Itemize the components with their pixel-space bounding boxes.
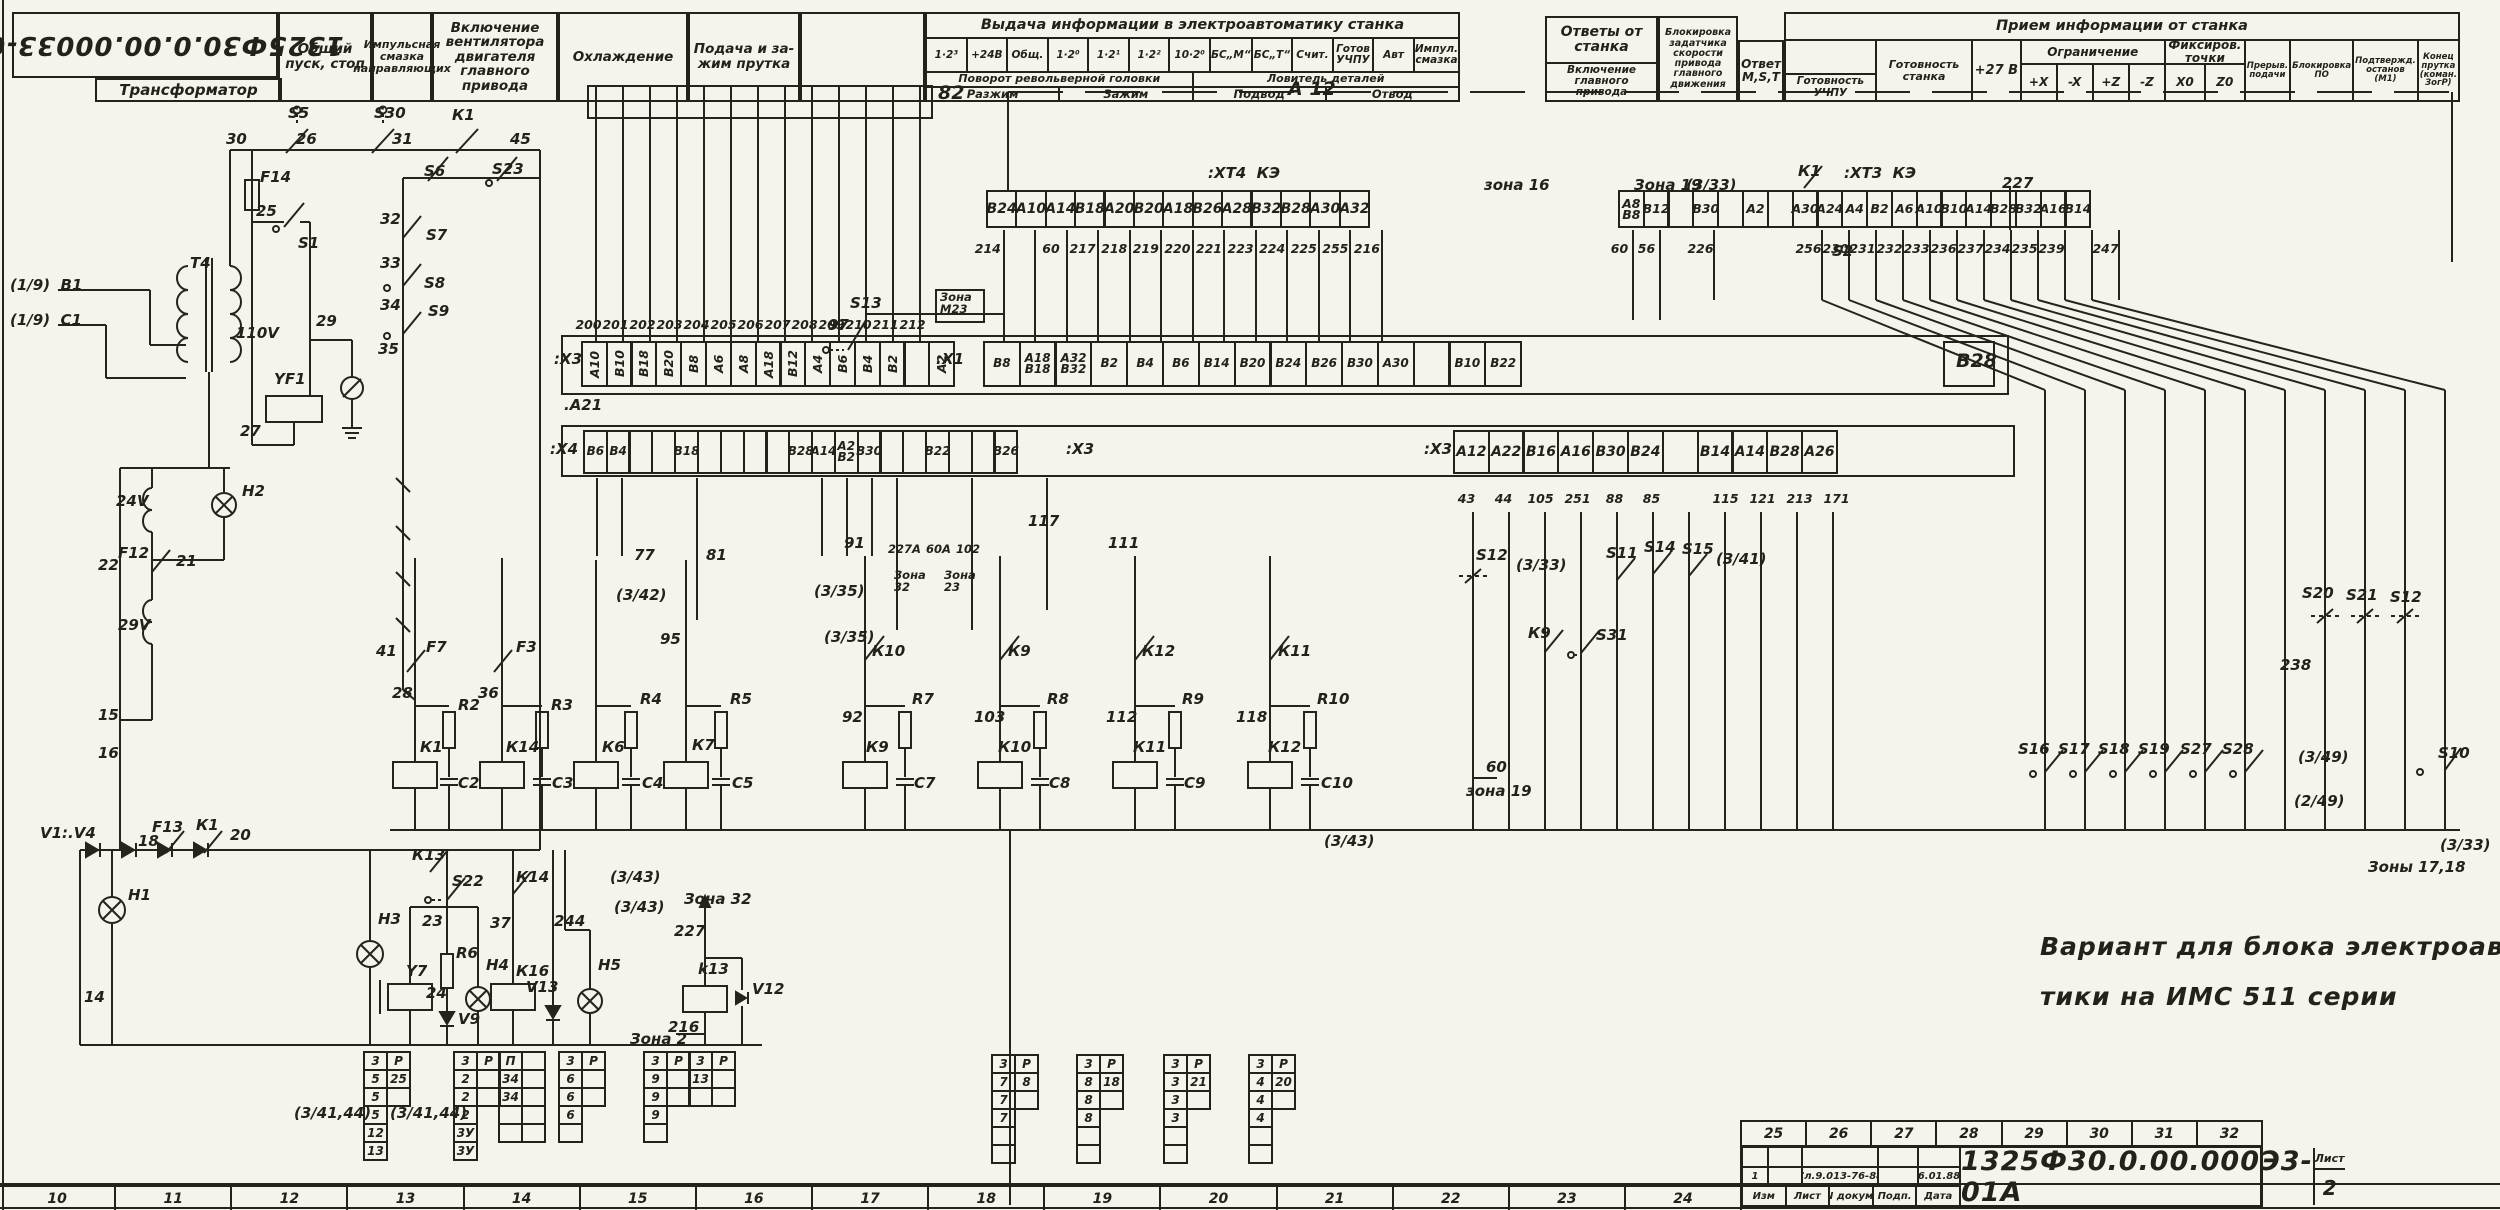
- wire-number: 44: [1485, 490, 1522, 506]
- schematic-label: А 12: [1288, 80, 1336, 99]
- contact-table-cell: [1163, 1126, 1188, 1146]
- fix-box: Фиксиров. точки X0Z0: [2166, 41, 2246, 100]
- zone-number: 32: [2198, 1122, 2261, 1145]
- ready-cnc-box: Готовность УЧПУ: [1786, 41, 1877, 100]
- contact-table-cell: 9: [643, 1087, 668, 1107]
- schematic-label: 112: [1106, 710, 1137, 725]
- wire-number: 88: [1596, 490, 1633, 506]
- schematic-label: Н1: [128, 888, 151, 903]
- terminal-cell: А4: [1841, 190, 1868, 228]
- schematic-label: Y7: [406, 964, 427, 979]
- contact-table-cell: 3: [991, 1054, 1016, 1074]
- schematic-label: R4: [640, 692, 662, 707]
- schematic-label: К12: [1268, 740, 1301, 755]
- contact-table-cell: Р: [581, 1051, 606, 1071]
- contact-table-cell: [1014, 1090, 1039, 1110]
- schematic-label: (3/41,44): [294, 1106, 371, 1121]
- schematic-label: Зона 2: [630, 1032, 687, 1047]
- terminal-cell: В30: [1692, 190, 1719, 228]
- connector-pin: В30: [857, 430, 882, 474]
- schematic-label: 92: [842, 710, 863, 725]
- schematic-label: S1: [298, 236, 319, 251]
- zone-number: 12: [232, 1187, 348, 1210]
- schematic-label: S15: [1682, 542, 1714, 557]
- schematic-label: 60А: [926, 544, 951, 556]
- contact-table: 3Р13: [690, 1053, 736, 1107]
- revision-footer: ИзмЛистN докум.Подп.Дата: [1743, 1187, 1959, 1205]
- fix-cell: X0: [2166, 65, 2206, 100]
- connector-pin: В20: [655, 341, 682, 387]
- schematic-label: 97: [828, 318, 849, 333]
- schematic-label: :Х1: [936, 352, 964, 367]
- x3-right-wire-numbers: 43441052518885115121213171: [1448, 490, 1855, 506]
- connector-pin: [948, 430, 973, 474]
- sheet-number: 2: [2315, 1170, 2345, 1205]
- schematic-label: S18: [2098, 742, 2130, 757]
- footer-col: N докум.: [1830, 1187, 1874, 1205]
- schematic-label: (3/43): [614, 900, 665, 915]
- zone-number: 21: [1278, 1187, 1394, 1210]
- contact-table-cell: [1163, 1144, 1188, 1164]
- connector-pin: В24: [1269, 341, 1307, 387]
- contact-table-cell: 3: [1076, 1054, 1101, 1074]
- contact-table: 3Р32133: [1165, 1056, 1211, 1164]
- schematic-label: 27: [240, 424, 261, 439]
- wire-number: 221: [1193, 240, 1225, 256]
- contact-table-cell: 3У: [453, 1123, 478, 1143]
- schematic-label: Зона 32: [684, 892, 752, 907]
- schematic-label: 30: [226, 132, 247, 147]
- schematic-label: К1: [452, 108, 475, 123]
- schematic-label: 36: [478, 686, 499, 701]
- wire-number: 234: [1984, 240, 2011, 256]
- terminal-cell: В20: [1133, 190, 1165, 228]
- xt3-wire-numbers: 6056226256230231232233236237234235239247: [1606, 240, 2119, 256]
- terminal-cell: А2: [1742, 190, 1769, 228]
- connector-pin: В2: [1090, 341, 1128, 387]
- contact-table-cell: 18: [1099, 1072, 1124, 1092]
- schematic-label: К10: [998, 740, 1031, 755]
- wire-number: 203: [656, 316, 683, 332]
- ready-machine-box: Готовность станка: [1877, 41, 1973, 100]
- title-block: 1 Сл.9.013-76-88 6.01.88 ИзмЛистN докум.…: [1740, 1145, 2263, 1208]
- schematic-label: 77: [634, 548, 655, 563]
- schematic-label: К1: [196, 818, 219, 833]
- zone-number: 15: [581, 1187, 697, 1210]
- xt4-wire-numbers: 21460217218219220221223224225255216: [972, 240, 1383, 256]
- connector-pin: А6: [705, 341, 732, 387]
- output-signal-cell: 10·2⁰: [1170, 39, 1211, 70]
- schematic-label: 34: [380, 298, 401, 313]
- connector-pin: А4: [804, 341, 831, 387]
- schematic-label: S7: [426, 228, 447, 243]
- terminal-cell: А30: [1309, 190, 1341, 228]
- ready-cnc-label: Готовность УЧПУ: [1786, 75, 1875, 100]
- schematic-label: (1/9) С1: [10, 313, 82, 328]
- wire-number: [2065, 240, 2092, 256]
- schematic-label: К9: [1008, 644, 1031, 659]
- schematic-label: 15: [98, 708, 119, 723]
- rev-doc: Сл.9.013-76-88: [1803, 1168, 1879, 1186]
- connector-pin: В16: [1522, 430, 1559, 474]
- schematic-label: 21: [176, 554, 197, 569]
- zone-number: 10: [0, 1187, 116, 1210]
- schematic-label: 16: [98, 746, 119, 761]
- wire-number: 217: [1067, 240, 1099, 256]
- schematic-label: S19: [2138, 742, 2170, 757]
- connector-pin: В6: [829, 341, 856, 387]
- connector-pin: А26: [1801, 430, 1838, 474]
- schematic-label: Н3: [378, 912, 401, 927]
- connector-pin: [765, 430, 790, 474]
- connector-pin: А10: [581, 341, 608, 387]
- zone-scale-title: 2526272829303132: [1740, 1120, 2263, 1145]
- schematic-label: S21: [2346, 588, 2378, 603]
- schematic-label: F3: [516, 640, 537, 655]
- schematic-label: К16: [516, 964, 549, 979]
- output-signal-cell: БС„М“: [1211, 39, 1253, 70]
- connector-pin: В8: [983, 341, 1021, 387]
- header-col-lubrication: Импульс­ная смазка направляющих: [372, 12, 432, 102]
- contact-table-cell: [1076, 1144, 1101, 1164]
- terminal-cell: В18: [1074, 190, 1106, 228]
- contact-table-cell: [1076, 1126, 1101, 1146]
- connector-x4: В6В4В18В28А14А2 В2В30В22В26: [585, 430, 1018, 474]
- contact-table: 3Р2223У3У: [455, 1053, 501, 1161]
- contact-table-cell: 7: [991, 1090, 1016, 1110]
- schematic-label: К12: [1142, 644, 1175, 659]
- terminal-cell: В28: [1280, 190, 1312, 228]
- turret-cell: Зажим: [1060, 88, 1191, 100]
- input-tail-cell: Прерыв. подачи: [2246, 41, 2291, 100]
- rev-num: 1: [1743, 1168, 1769, 1186]
- schematic-label: S23: [492, 162, 524, 177]
- terminal-cell: В10: [1940, 190, 1967, 228]
- contact-table-cell: [1099, 1090, 1124, 1110]
- connector-pin: [1413, 341, 1451, 387]
- schematic-label: С4: [642, 776, 663, 791]
- connector-pin: А18: [755, 341, 782, 387]
- wire-number: 201: [602, 316, 629, 332]
- schematic-label: К11: [1133, 740, 1166, 755]
- schematic-label: V1:.V4: [40, 826, 96, 841]
- connector-pin: В10: [1448, 341, 1486, 387]
- schematic-label: Зона 32: [894, 570, 926, 593]
- wire-number: 200: [575, 316, 602, 332]
- schematic-label: 22: [98, 558, 119, 573]
- output-signal-cell: Счит.: [1293, 39, 1334, 70]
- schematic-label: 14: [84, 990, 105, 1005]
- schematic-label: зона 16: [1484, 178, 1550, 193]
- connector-pin: [1662, 430, 1699, 474]
- zone-number: 14: [465, 1187, 581, 1210]
- connector-pin: В14: [1697, 430, 1734, 474]
- schematic-label: 60: [1486, 760, 1507, 775]
- schematic-label: S28: [2222, 742, 2254, 757]
- wire-number: 207: [764, 316, 791, 332]
- wire-number: 224: [1256, 240, 1288, 256]
- output-section: Выдача информации в электроавтоматику ст…: [925, 12, 1460, 102]
- zone-number: 30: [2068, 1122, 2133, 1145]
- zone-number: 25: [1742, 1122, 1807, 1145]
- contact-table-cell: 3: [1163, 1054, 1188, 1074]
- schematic-label: YF1: [274, 372, 306, 387]
- answers-sub: Включение главного привода: [1547, 64, 1656, 100]
- turret-title: Поворот револьверной головки: [927, 73, 1192, 88]
- limit-cell: +X: [2022, 65, 2058, 100]
- wire-number: 251: [1559, 490, 1596, 506]
- schematic-label: :ХТ4 КЭ: [1208, 166, 1280, 181]
- contact-table-cell: 4: [1248, 1090, 1273, 1110]
- schematic-label: С8: [1049, 776, 1070, 791]
- schematic-label: 102: [956, 544, 980, 556]
- zone-number: 26: [1807, 1122, 1872, 1145]
- terminal-cell: В12: [1643, 190, 1670, 228]
- wire-number: 236: [1930, 240, 1957, 256]
- contact-table-cell: 34: [498, 1069, 523, 1089]
- schematic-label: 23: [422, 914, 443, 929]
- schematic-label: 91: [844, 536, 865, 551]
- schematic-label: С3: [552, 776, 573, 791]
- schematic-label: (3/33): [1686, 178, 1737, 193]
- schematic-label: 118: [1236, 710, 1267, 725]
- contact-table-cell: 13: [688, 1069, 713, 1089]
- terminal-cell: А14: [1045, 190, 1077, 228]
- schematic-label: :Х4: [550, 442, 578, 457]
- schematic-label: Зона 23: [944, 570, 976, 593]
- answer-mst-box: Ответ M,S,T: [1738, 40, 1784, 102]
- terminal-cell: [1717, 190, 1744, 228]
- schematic-label: R5: [730, 692, 752, 707]
- wire-number: [953, 316, 980, 332]
- contact-table-cell: 6: [558, 1105, 583, 1125]
- schematic-label: R10: [1317, 692, 1349, 707]
- contact-table-cell: 12: [363, 1123, 388, 1143]
- contact-table-cell: [1248, 1144, 1273, 1164]
- schematic-label: F7: [426, 640, 447, 655]
- terminal-cell: А20: [1103, 190, 1135, 228]
- wire-number: 218: [1098, 240, 1130, 256]
- output-signal-cell: БС„Т“: [1253, 39, 1294, 70]
- answers-title: Ответы от станка: [1547, 18, 1656, 64]
- connector-pin: [879, 430, 904, 474]
- schematic-label: зона 19: [1466, 784, 1532, 799]
- schematic-label: (3/33): [2440, 838, 2491, 853]
- schematic-label: 45: [510, 132, 531, 147]
- schematic-label: (3/43): [1324, 834, 1375, 849]
- sheet-box: Лист 2: [2313, 1148, 2345, 1205]
- contact-table-cell: 4: [1248, 1072, 1273, 1092]
- contact-table: 3Р525551213: [365, 1053, 411, 1161]
- contact-table-cell: [1186, 1090, 1211, 1110]
- schematic-label: R9: [1182, 692, 1204, 707]
- connector-pin: В4: [1126, 341, 1164, 387]
- schematic-label: 31: [392, 132, 413, 147]
- connector-pin: В10: [606, 341, 633, 387]
- answers-box: Ответы от станка Включение главного прив…: [1545, 16, 1658, 102]
- wire-number: 226: [1687, 240, 1714, 256]
- connector-pin: А12: [1453, 430, 1490, 474]
- schematic-label: S11: [1606, 546, 1638, 561]
- wire-number: 247: [2092, 240, 2119, 256]
- schematic-label: 111: [1108, 536, 1139, 551]
- contact-table-cell: [711, 1087, 736, 1107]
- contact-table-cell: 3: [363, 1051, 388, 1071]
- wire-number: 216: [1351, 240, 1383, 256]
- schematic-label: 32: [380, 212, 401, 227]
- schematic-label: 33: [380, 256, 401, 271]
- zone-number: 29: [2003, 1122, 2068, 1145]
- plus27-box: +27 В: [1973, 41, 2021, 100]
- contact-table-cell: [521, 1123, 546, 1143]
- connector-pin: А16: [1557, 430, 1594, 474]
- contact-table-cell: [991, 1126, 1016, 1146]
- connector-pin: А2 В2: [834, 430, 859, 474]
- wire-number: 213: [1781, 490, 1818, 506]
- x3-left-wire-numbers: 200201202203204205206207208209210211212: [575, 316, 980, 332]
- schematic-label: К14: [506, 740, 539, 755]
- schematic-label: 18: [138, 834, 159, 849]
- terminal-cell: А14: [1965, 190, 1992, 228]
- connector-pin: А14: [1731, 430, 1768, 474]
- schematic-label: 227: [2002, 176, 2033, 191]
- contact-table-cell: 6: [558, 1069, 583, 1089]
- schematic-label: S10: [2438, 746, 2470, 761]
- fix-cell: Z0: [2206, 65, 2244, 100]
- wire-number: 233: [1903, 240, 1930, 256]
- contact-table-cell: Р: [386, 1051, 411, 1071]
- header-col-bar-feed: Подача и за­жим прутка: [688, 12, 800, 102]
- connector-pin: [971, 430, 996, 474]
- contact-table: 3Р81888: [1078, 1056, 1124, 1164]
- terminal-cell: А6: [1891, 190, 1918, 228]
- input-tail-cells: Прерыв. подачиБлокировка ПОПодтвержд. ос…: [2246, 41, 2458, 100]
- schematic-label: Н2: [242, 484, 265, 499]
- schematic-label: S20: [2302, 586, 2334, 601]
- schematic-label: С7: [914, 776, 935, 791]
- contact-table-cell: Р: [1186, 1054, 1211, 1074]
- contact-table-cell: Р: [1099, 1054, 1124, 1074]
- terminal-strip-xt4: В24А10А14В18А20В20А18В26А28В32В28А30А32: [988, 190, 1370, 228]
- schematic-label: S14: [1644, 540, 1676, 555]
- schematic-label: К1: [420, 740, 443, 755]
- connector-pin: В6: [1162, 341, 1200, 387]
- schematic-label: 28: [392, 686, 413, 701]
- schematic-label: S22: [452, 874, 484, 889]
- terminal-cell: В26: [1192, 190, 1224, 228]
- schematic-label: К11: [1278, 644, 1311, 659]
- schematic-label: Зона М23: [940, 292, 972, 315]
- wire-number: 60: [1606, 240, 1633, 256]
- connector-pin: А30: [1377, 341, 1415, 387]
- wire-number: 85: [1633, 490, 1670, 506]
- schematic-label: 35: [378, 342, 399, 357]
- schematic-label: (3/35): [824, 630, 875, 645]
- schematic-label: R2: [458, 698, 480, 713]
- schematic-label: (3/33): [1516, 558, 1567, 573]
- contact-table-cell: 8: [1076, 1072, 1101, 1092]
- schematic-label: (3/43): [610, 870, 661, 885]
- connector-pin: [743, 430, 768, 474]
- contact-table-cell: 9: [643, 1069, 668, 1089]
- wire-number: 121: [1744, 490, 1781, 506]
- contact-table-cell: 6: [558, 1087, 583, 1107]
- schematic-label: 20: [230, 828, 251, 843]
- connector-pin: В20: [1234, 341, 1272, 387]
- wire-number: 239: [2038, 240, 2065, 256]
- wire-number: 206: [737, 316, 764, 332]
- output-signals: 1·2³+24ВОбщ.1·2⁰1·2¹1·2²10·2⁰БС„М“БС„Т“С…: [927, 39, 1458, 72]
- wire-number: 223: [1225, 240, 1257, 256]
- zone-number: 20: [1161, 1187, 1277, 1210]
- limit-cell: -X: [2058, 65, 2094, 100]
- contact-table-cell: 3У: [453, 1141, 478, 1161]
- contact-table-cell: [521, 1051, 546, 1071]
- schematic-label: 24V: [116, 494, 148, 509]
- doc-number-mirrored-box: 1325Ф30.0.00.00033-01А: [12, 12, 278, 78]
- schematic-label: S12: [1476, 548, 1508, 563]
- limit-cell: -Z: [2130, 65, 2164, 100]
- zone-number: 16: [697, 1187, 813, 1210]
- output-signal-cell: Импул. смазка: [1415, 39, 1458, 70]
- terminal-cell: В32: [2015, 190, 2042, 228]
- header-col-fan: Включение вентилятора двигателя главного…: [432, 12, 558, 102]
- terminal-cell: А10: [1015, 190, 1047, 228]
- schematic-label: 103: [974, 710, 1005, 725]
- schematic-label: S12: [2390, 590, 2422, 605]
- input-section: Прием информации от станка Готовность УЧ…: [1784, 12, 2460, 102]
- connector-pin: А8: [730, 341, 757, 387]
- output-signal-cell: +24В: [968, 39, 1009, 70]
- schematic-label: С2: [458, 776, 479, 791]
- output-signal-cell: 1·2³: [927, 39, 968, 70]
- connector-pin: В4: [854, 341, 881, 387]
- contact-table-cell: 8: [1076, 1108, 1101, 1128]
- schematic-label: S6: [424, 164, 445, 179]
- contact-table-cell: 4: [1248, 1108, 1273, 1128]
- transformer-label: Трансформатор: [95, 78, 282, 102]
- terminal-strip-xt3: А8 В8В12В30А2А30А24А4В2А6А10В10А14В28В32…: [1620, 190, 2091, 228]
- connector-pin: В24: [1627, 430, 1664, 474]
- contact-table-cell: [1248, 1126, 1273, 1146]
- contact-table-cell: П: [498, 1051, 523, 1071]
- zone-number: 23: [1510, 1187, 1626, 1210]
- schematic-label: К6: [602, 740, 625, 755]
- schematic-label: 26: [296, 132, 317, 147]
- connector-pin: [651, 430, 676, 474]
- footer-col: Лист: [1787, 1187, 1831, 1205]
- connector-pin: В30: [1592, 430, 1629, 474]
- wire-number: 232: [1876, 240, 1903, 256]
- output-signal-cell: 1·2¹: [1089, 39, 1130, 70]
- contact-table: 3Р999: [645, 1053, 691, 1143]
- contact-table-cell: 20: [1271, 1072, 1296, 1092]
- contact-table-cell: [498, 1123, 523, 1143]
- contact-table-cell: 8: [1014, 1072, 1039, 1092]
- connector-x1: В8А18 В18А32 В32В2В4В6В14В20В24В26В30А30…: [985, 341, 1522, 387]
- terminal-cell: А16: [2040, 190, 2067, 228]
- connector-pin: [902, 430, 927, 474]
- variant-note-line2: тики на ИМС 511 серии: [2040, 982, 2398, 1011]
- schematic-label: 227: [674, 924, 705, 939]
- contact-table-cell: 5: [363, 1069, 388, 1089]
- catcher-cell: Отвод: [1327, 88, 1458, 100]
- terminal-cell: В32: [1250, 190, 1282, 228]
- input-title: Прием информации от станка: [1786, 14, 2458, 41]
- blocking-box: Блокировка задатчика скорости привода гл…: [1658, 16, 1738, 102]
- schematic-label: 82: [938, 84, 964, 103]
- zone-number: 24: [1626, 1187, 1742, 1210]
